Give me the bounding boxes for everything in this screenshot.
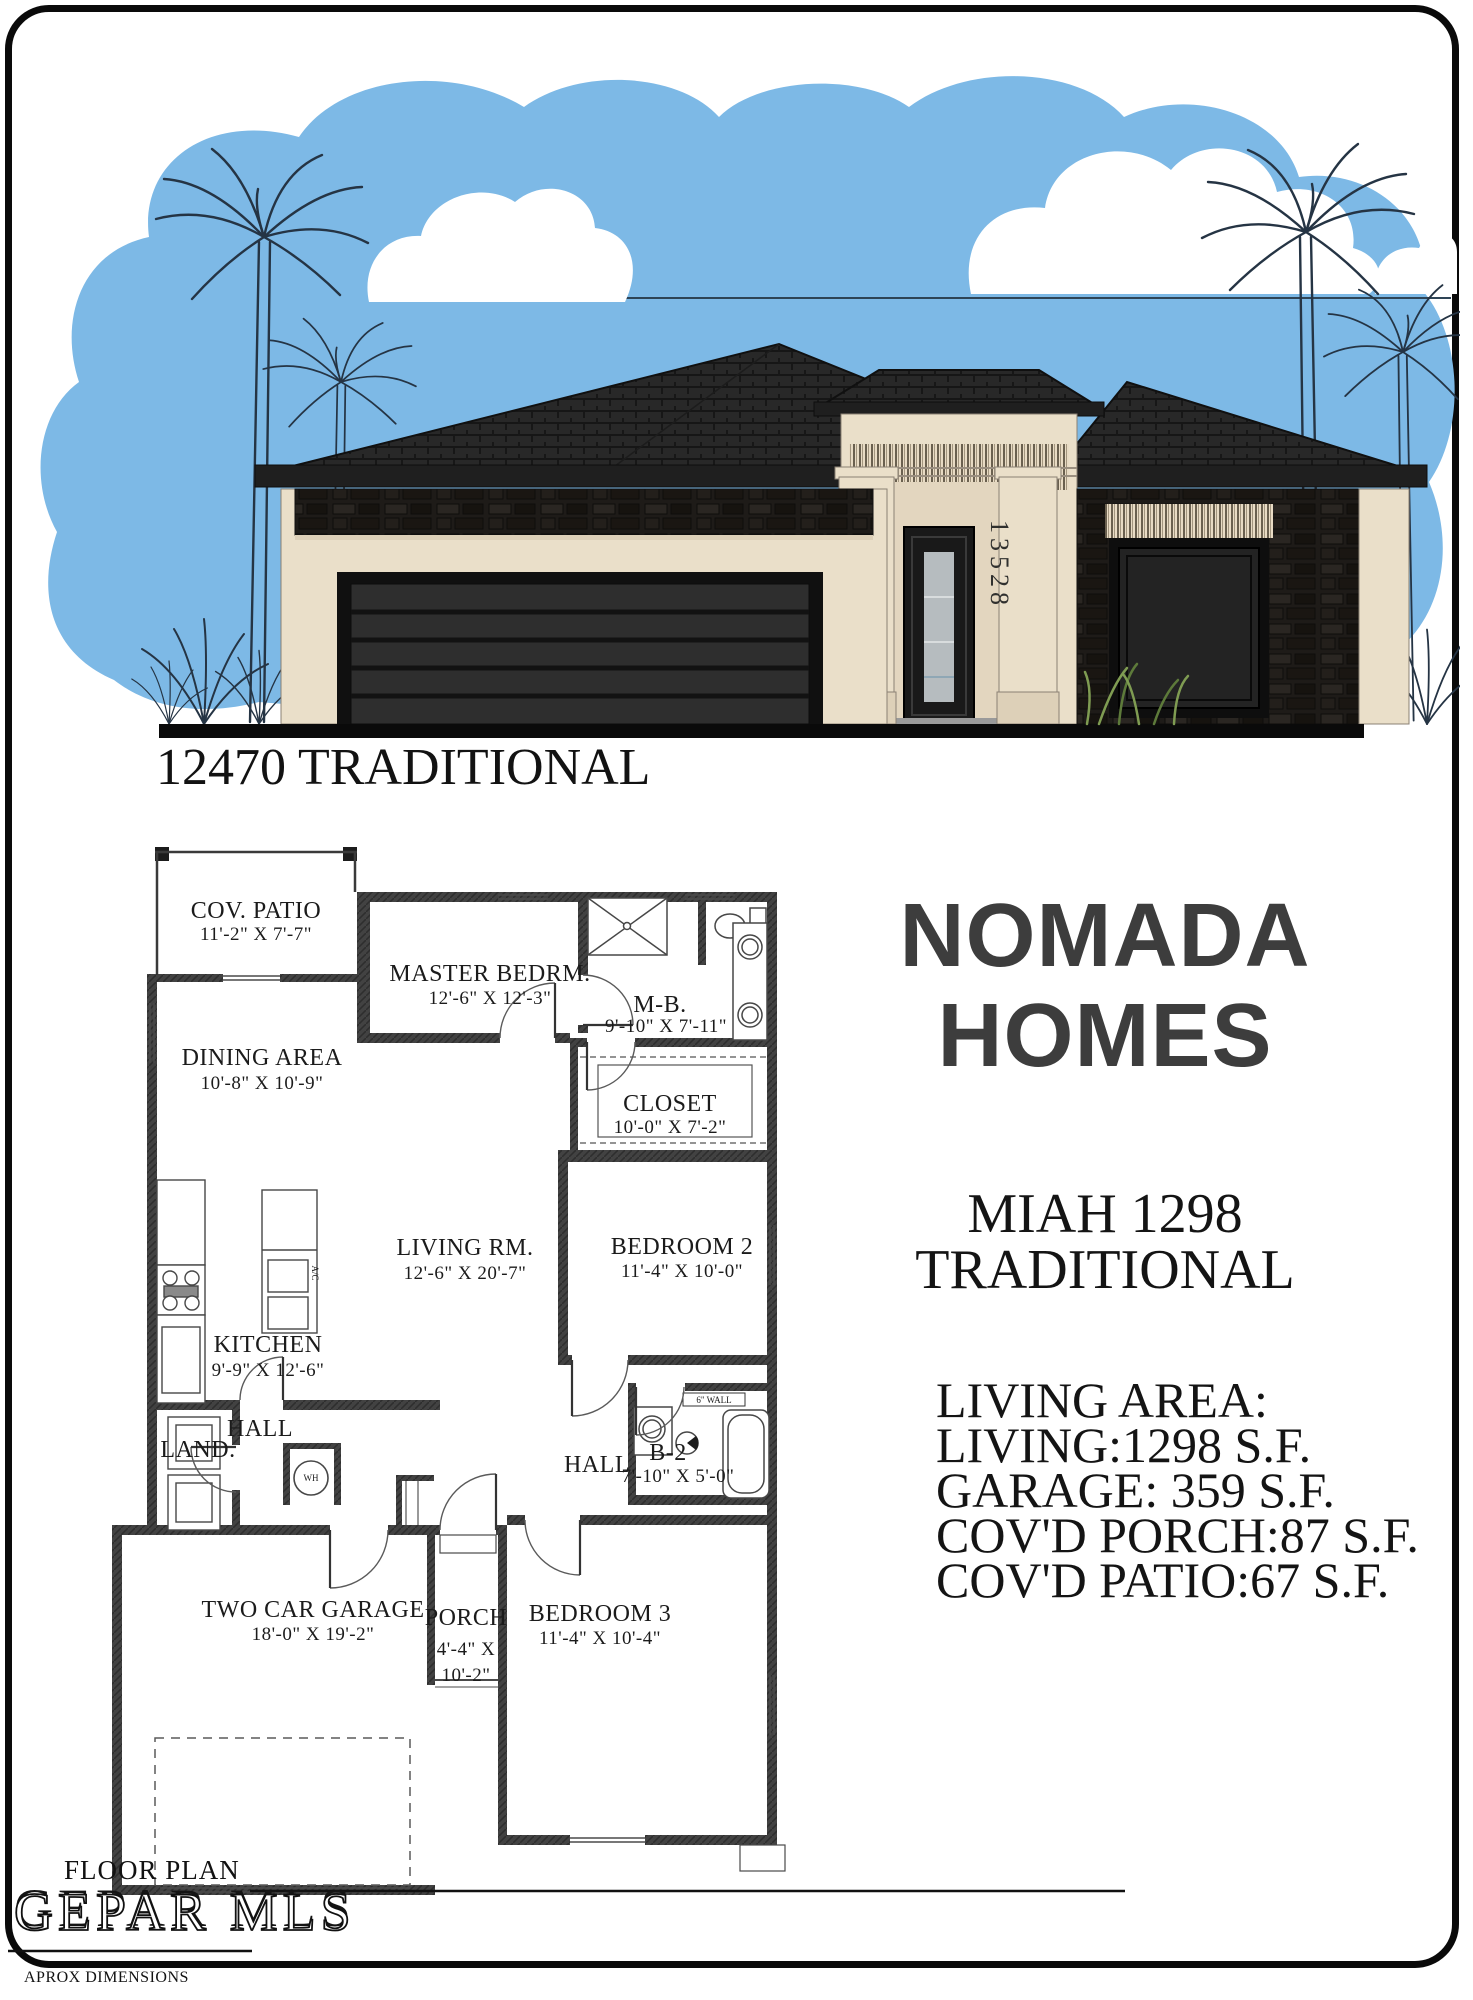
svg-text:M-B.: M-B. xyxy=(633,992,686,1018)
builder-name-line1: NOMADA xyxy=(860,886,1350,986)
room-bedroom-3: BEDROOM 3 11'-4" X 10'-4" xyxy=(529,1601,672,1649)
svg-text:CLOSET: CLOSET xyxy=(623,1091,717,1117)
svg-text:TWO CAR GARAGE: TWO CAR GARAGE xyxy=(202,1597,425,1623)
right-roof-fascia xyxy=(1045,465,1427,487)
model-name-line2: TRADITIONAL xyxy=(850,1242,1360,1298)
ground-line xyxy=(159,724,1364,738)
ac-label: A/C xyxy=(310,1265,320,1280)
svg-text:LIVING RM.: LIVING RM. xyxy=(397,1235,534,1261)
garage-door xyxy=(351,584,809,724)
model-name-line1: MIAH 1298 xyxy=(850,1186,1360,1242)
water-heater-label: WH xyxy=(304,1473,319,1483)
room-living-room: LIVING RM. 12'-6" X 20'-7" xyxy=(397,1235,534,1284)
house-number: 13528 xyxy=(985,520,1014,610)
svg-text:DINING AREA: DINING AREA xyxy=(182,1045,343,1071)
svg-text:10'-2": 10'-2" xyxy=(441,1665,490,1686)
footer-watermark-area: GEPAR MLS GEPAR MLS xyxy=(0,1868,1473,1978)
svg-text:4'-4" X: 4'-4" X xyxy=(437,1639,495,1660)
svg-text:9'-9" X 12'-6": 9'-9" X 12'-6" xyxy=(212,1360,325,1381)
house-elevation-rendering: 13528 xyxy=(18,52,1460,744)
svg-text:BEDROOM 2: BEDROOM 2 xyxy=(611,1234,754,1260)
svg-text:KITCHEN: KITCHEN xyxy=(214,1332,323,1358)
area-covd-patio: COV'D PATIO:67 S.F. xyxy=(936,1558,1419,1603)
garage-frieze-stone xyxy=(295,489,873,535)
svg-text:PORCH: PORCH xyxy=(425,1605,508,1631)
mls-watermark: GEPAR MLS xyxy=(14,1882,356,1942)
right-window xyxy=(1119,548,1259,708)
room-master-bedroom: MASTER BEDRM. 12'-6" X 12'-3" xyxy=(389,961,590,1009)
room-cov-patio: COV. PATIO 11'-2" X 7'-7" xyxy=(191,898,321,945)
floor-plan: A/C WH 6" WALL xyxy=(100,835,845,1905)
room-porch: PORCH 4'-4" X 10'-2" xyxy=(425,1605,508,1686)
room-hall-left: HALL xyxy=(227,1416,293,1442)
room-dining-area: DINING AREA 10'-8" X 10'-9" xyxy=(182,1045,343,1094)
svg-text:12'-6" X 12'-3": 12'-6" X 12'-3" xyxy=(429,988,552,1009)
coat-closet-lines xyxy=(406,1481,418,1525)
svg-text:MASTER BEDRM.: MASTER BEDRM. xyxy=(389,961,590,987)
plan-number-title: 12470 TRADITIONAL xyxy=(156,738,650,797)
pillar-base-right xyxy=(997,692,1059,724)
room-master-bath: M-B. 9'-10" X 7'-11" xyxy=(605,992,727,1037)
svg-text:COV. PATIO: COV. PATIO xyxy=(191,898,321,924)
window-lintel-stripes xyxy=(1105,504,1273,538)
svg-text:9'-10" X 7'-11": 9'-10" X 7'-11" xyxy=(605,1016,727,1037)
dimensions-disclaimer: APROX DIMENSIONS xyxy=(24,1969,189,1987)
svg-text:BEDROOM 3: BEDROOM 3 xyxy=(529,1601,672,1627)
svg-text:11'-4" X 10'-4": 11'-4" X 10'-4" xyxy=(539,1628,661,1649)
svg-text:11'-2" X 7'-7": 11'-2" X 7'-7" xyxy=(200,924,312,945)
room-kitchen: KITCHEN 9'-9" X 12'-6" xyxy=(212,1332,325,1381)
model-name: MIAH 1298 TRADITIONAL xyxy=(850,1186,1360,1298)
flyer-page: 13528 xyxy=(0,0,1473,2000)
room-hall-right: HALL xyxy=(564,1452,630,1478)
water-heater: WH xyxy=(294,1461,328,1495)
wall-note-tag: 6" WALL xyxy=(683,1393,745,1406)
svg-text:18'-0" X 19'-2": 18'-0" X 19'-2" xyxy=(252,1624,375,1645)
front-door-glass xyxy=(924,552,954,702)
builder-name: NOMADA HOMES xyxy=(860,886,1350,1086)
room-bedroom-2: BEDROOM 2 11'-4" X 10'-0" xyxy=(611,1234,754,1282)
svg-text:10'-8" X 10'-9": 10'-8" X 10'-9" xyxy=(201,1073,324,1094)
svg-text:11'-4" X 10'-0": 11'-4" X 10'-0" xyxy=(621,1261,743,1282)
laundry-appliances xyxy=(168,1417,220,1530)
garage-ledge xyxy=(295,535,873,540)
room-garage: TWO CAR GARAGE 18'-0" X 19'-2" xyxy=(202,1597,425,1645)
wall-note-label: 6" WALL xyxy=(696,1395,731,1405)
porch-steps xyxy=(435,1535,785,1871)
right-wing-corner-stucco xyxy=(1359,489,1409,724)
svg-text:B-2: B-2 xyxy=(649,1440,687,1466)
room-laundry: LAND. xyxy=(160,1437,235,1463)
svg-text:10'-0" X 7'-2": 10'-0" X 7'-2" xyxy=(614,1117,727,1138)
svg-text:7'-10" X 5'-0": 7'-10" X 5'-0" xyxy=(622,1466,735,1487)
area-summary: LIVING AREA: LIVING:1298 S.F. GARAGE: 35… xyxy=(936,1378,1419,1603)
room-closet: CLOSET 10'-0" X 7'-2" xyxy=(614,1091,727,1138)
svg-text:12'-6" X 20'-7": 12'-6" X 20'-7" xyxy=(404,1263,527,1284)
builder-name-line2: HOMES xyxy=(860,986,1350,1086)
